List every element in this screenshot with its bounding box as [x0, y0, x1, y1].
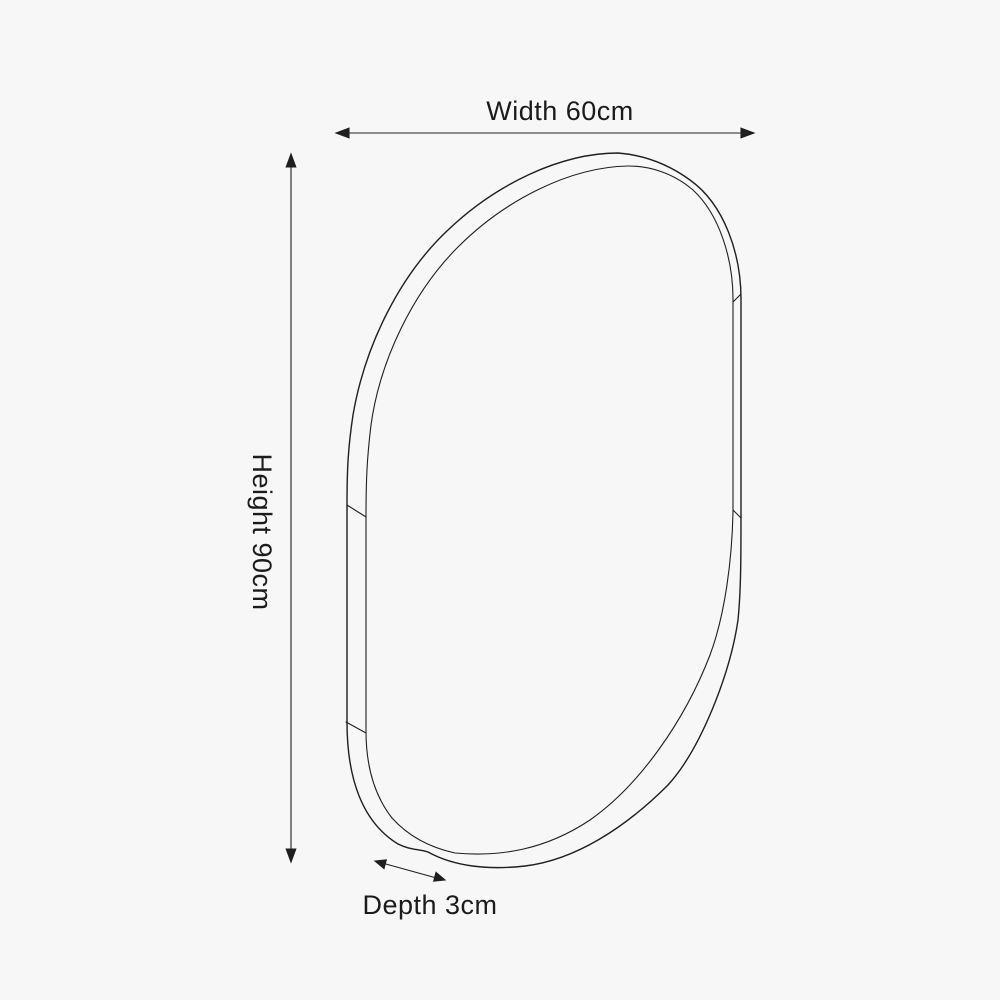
depth-dimension-label: Depth 3cm — [320, 890, 540, 920]
mirror-line-drawing — [0, 0, 1000, 1000]
arrowhead-depth-left-icon — [375, 860, 386, 869]
height-dimension-label: Height 90cm — [247, 422, 277, 642]
frame-tick-right-bottom — [733, 510, 741, 518]
width-dimension-label: Width 60cm — [450, 96, 670, 126]
arrowhead-depth-right-icon — [434, 872, 445, 881]
dimension-diagram: Width 60cm Height 90cm Depth 3cm — [0, 0, 1000, 1000]
mirror-inner-lip-outline — [366, 166, 733, 854]
frame-tick-right-top — [733, 294, 741, 302]
frame-tick-left-top — [347, 505, 366, 517]
depth-dimension-arrow — [375, 860, 445, 881]
arrowhead-up-icon — [286, 154, 296, 167]
mirror-outer-outline — [347, 153, 741, 868]
width-dimension-arrow — [336, 128, 754, 138]
arrowhead-down-icon — [286, 849, 296, 862]
arrowhead-left-icon — [336, 128, 349, 138]
frame-tick-left-bottom — [346, 722, 366, 733]
arrowhead-right-icon — [741, 128, 754, 138]
height-dimension-arrow — [286, 154, 296, 862]
